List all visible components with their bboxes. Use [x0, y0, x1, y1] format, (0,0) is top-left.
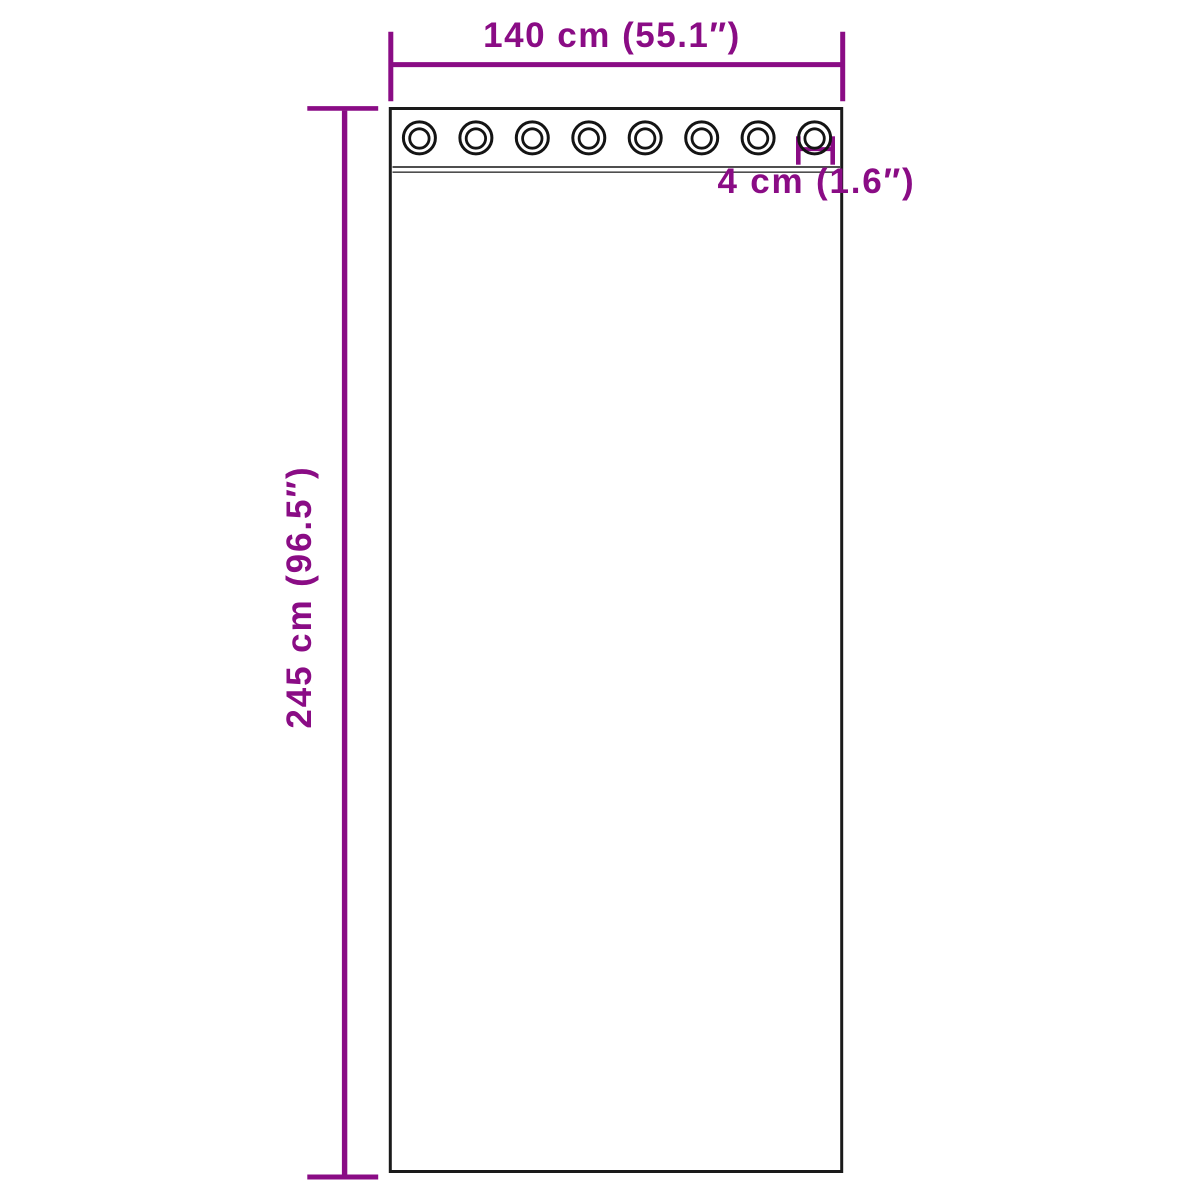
svg-text:140 cm (55.1″): 140 cm (55.1″) [483, 16, 741, 55]
svg-text:245 cm (96.5″): 245 cm (96.5″) [280, 465, 319, 728]
svg-text:4 cm (1.6″): 4 cm (1.6″) [717, 162, 915, 201]
